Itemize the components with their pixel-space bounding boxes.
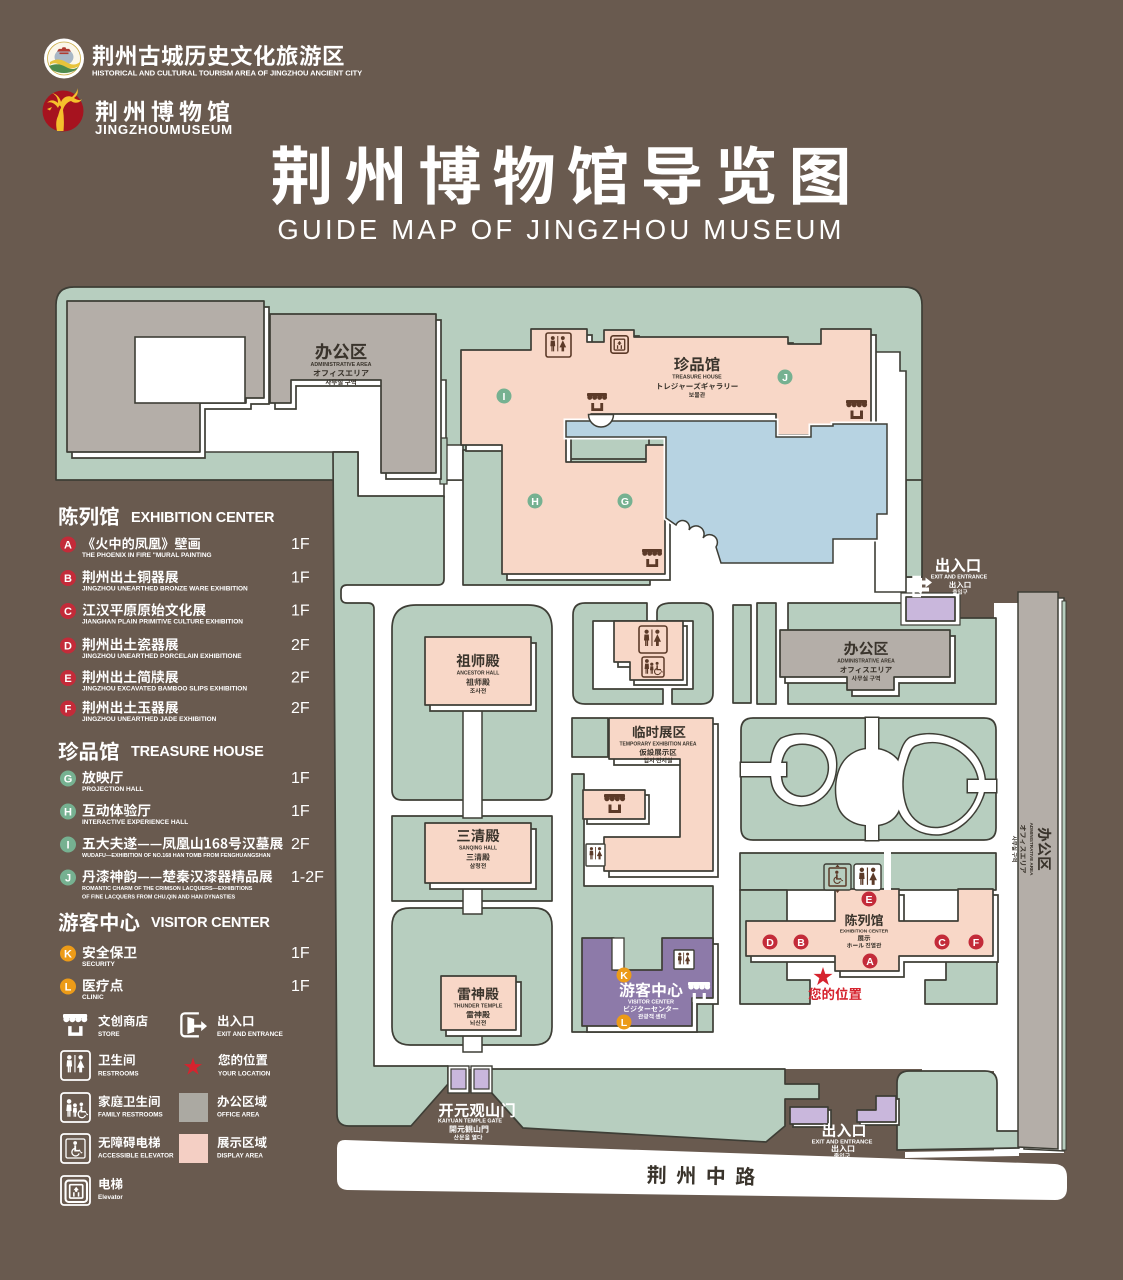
svg-text:EXHIBITION CENTER: EXHIBITION CENTER — [131, 510, 275, 526]
svg-text:THUNDER TEMPLE: THUNDER TEMPLE — [454, 1004, 503, 1010]
svg-text:E: E — [865, 894, 872, 906]
svg-text:H: H — [64, 806, 72, 818]
svg-text:JINGZHOUMUSEUM: JINGZHOUMUSEUM — [95, 122, 233, 137]
svg-text:G: G — [64, 773, 73, 785]
svg-text:K: K — [620, 970, 628, 982]
svg-text:D: D — [64, 640, 72, 652]
svg-text:FAMILY RESTROOMS: FAMILY RESTROOMS — [98, 1112, 163, 1119]
svg-text:ADMINISTRATIVE AREA: ADMINISTRATIVE AREA — [311, 362, 372, 368]
svg-text:1F: 1F — [291, 536, 310, 553]
svg-text:EXHIBITION CENTER: EXHIBITION CENTER — [840, 929, 889, 935]
svg-text:TREASURE HOUSE: TREASURE HOUSE — [672, 375, 722, 381]
svg-text:ADMINISTRATIVE AREA: ADMINISTRATIVE AREA — [1029, 823, 1034, 877]
svg-text:1-2F: 1-2F — [291, 869, 324, 886]
svg-text:D: D — [766, 937, 774, 949]
svg-text:ROMANTIC CHARM OF THE CRIMSON: ROMANTIC CHARM OF THE CRIMSON LACQUERS—E… — [82, 886, 253, 892]
svg-text:SANQING HALL: SANQING HALL — [459, 846, 497, 852]
svg-text:DISPLAY AREA: DISPLAY AREA — [217, 1153, 263, 1160]
svg-text:GUIDE MAP OF JINGZHOU MUSEUM: GUIDE MAP OF JINGZHOU MUSEUM — [277, 214, 844, 245]
svg-text:JINGZHOU UNEARTHED PORCELAIN E: JINGZHOU UNEARTHED PORCELAIN EXHIBITIONE — [82, 653, 242, 660]
svg-text:JINGZHOU UNEARTHED JADE EXHIBI: JINGZHOU UNEARTHED JADE EXHIBITION — [82, 716, 217, 723]
svg-text:OF FINE LACQUERS FROM CHU,QIN: OF FINE LACQUERS FROM CHU,QIN AND HAN DY… — [82, 895, 236, 901]
svg-text:E: E — [64, 673, 71, 685]
svg-text:EXIT AND ENTRANCE: EXIT AND ENTRANCE — [812, 1140, 873, 1146]
svg-text:CLINIC: CLINIC — [82, 994, 104, 1001]
svg-text:RESTROOMS: RESTROOMS — [98, 1071, 139, 1078]
svg-text:H: H — [531, 496, 539, 508]
svg-text:KAIYUAN TEMPLE GATE: KAIYUAN TEMPLE GATE — [438, 1119, 502, 1125]
svg-text:B: B — [64, 573, 72, 585]
svg-text:JIANGHAN PLAIN PRIMITIVE CULTU: JIANGHAN PLAIN PRIMITIVE CULTURE EXHIBIT… — [82, 619, 243, 626]
svg-text:THE PHOENIX IN FIRE "MURAL PAI: THE PHOENIX IN FIRE "MURAL PAINTING — [82, 552, 212, 559]
svg-text:K: K — [64, 948, 72, 960]
svg-text:HISTORICAL AND CULTURAL TOURIS: HISTORICAL AND CULTURAL TOURISM AREA OF … — [92, 69, 362, 78]
svg-text:B: B — [797, 937, 805, 949]
svg-text:I: I — [66, 839, 69, 851]
svg-text:YOUR LOCATION: YOUR LOCATION — [218, 1071, 271, 1078]
svg-text:1F: 1F — [291, 770, 310, 787]
svg-text:STORE: STORE — [98, 1031, 120, 1038]
svg-text:1F: 1F — [291, 978, 310, 995]
svg-text:C: C — [938, 937, 946, 949]
svg-text:SECURITY: SECURITY — [82, 961, 116, 968]
svg-text:2F: 2F — [291, 836, 310, 853]
svg-text:1F: 1F — [291, 603, 310, 620]
svg-text:G: G — [621, 496, 629, 508]
svg-text:ANCESTOR HALL: ANCESTOR HALL — [457, 671, 500, 677]
svg-text:C: C — [64, 606, 72, 618]
svg-text:A: A — [866, 956, 874, 968]
svg-text:VISITOR CENTER: VISITOR CENTER — [628, 1000, 674, 1006]
svg-text:2F: 2F — [291, 700, 310, 717]
svg-text:1F: 1F — [291, 570, 310, 587]
svg-text:J: J — [782, 372, 788, 384]
svg-text:JINGZHOU EXCAVATED BAMBOO SLIP: JINGZHOU EXCAVATED BAMBOO SLIPS EXHIBITI… — [82, 686, 247, 693]
svg-text:VISITOR CENTER: VISITOR CENTER — [151, 915, 270, 931]
svg-text:L: L — [621, 1017, 628, 1029]
svg-text:ACCESSIBLE ELEVATOR: ACCESSIBLE ELEVATOR — [98, 1153, 174, 1160]
svg-text:F: F — [973, 937, 980, 949]
svg-text:TREASURE HOUSE: TREASURE HOUSE — [131, 744, 264, 760]
svg-text:EXIT AND ENTRANCE: EXIT AND ENTRANCE — [217, 1031, 283, 1038]
svg-text:JINGZHOU UNEARTHED BRONZE WARE: JINGZHOU UNEARTHED BRONZE WARE EXHIBITIO… — [82, 586, 248, 593]
svg-text:L: L — [65, 981, 72, 993]
svg-text:Elevator: Elevator — [98, 1194, 123, 1201]
svg-text:EXIT AND ENTRANCE: EXIT AND ENTRANCE — [931, 575, 988, 581]
svg-text:OFFICE AREA: OFFICE AREA — [217, 1112, 260, 1119]
svg-text:ADMINISTRATIVE AREA: ADMINISTRATIVE AREA — [837, 659, 895, 665]
svg-text:J: J — [65, 872, 71, 884]
svg-text:INTERACTIVE EXPERIENCE HALL: INTERACTIVE EXPERIENCE HALL — [82, 819, 188, 826]
svg-text:TEMPORARY EXHIBITION AREA: TEMPORARY EXHIBITION AREA — [619, 742, 696, 748]
svg-text:1F: 1F — [291, 945, 310, 962]
svg-text:I: I — [503, 391, 506, 403]
svg-text:2F: 2F — [291, 670, 310, 687]
svg-text:WUDAFU—EXHIBITION OF NO.168 HA: WUDAFU—EXHIBITION OF NO.168 HAN TOMB FRO… — [82, 853, 271, 859]
svg-text:F: F — [65, 703, 72, 715]
svg-text:PROJECTION HALL: PROJECTION HALL — [82, 786, 143, 793]
svg-text:1F: 1F — [291, 803, 310, 820]
svg-text:A: A — [64, 539, 72, 551]
svg-text:2F: 2F — [291, 637, 310, 654]
